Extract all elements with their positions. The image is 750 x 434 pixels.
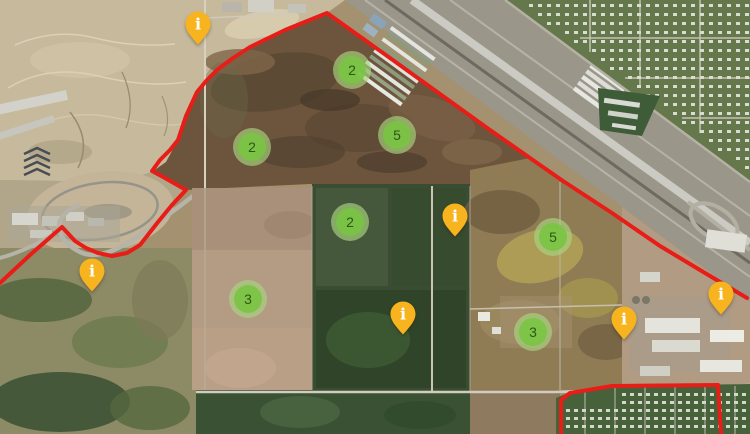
info-pin[interactable]: i: [390, 301, 416, 335]
cluster-marker[interactable]: 2: [331, 203, 369, 241]
info-pin[interactable]: i: [611, 306, 637, 340]
cluster-count: 5: [383, 121, 411, 149]
svg-text:i: i: [718, 285, 724, 304]
info-pin-icon: i: [79, 258, 105, 292]
map-canvas[interactable]: 2522533 iiiiii: [0, 0, 750, 434]
cluster-count: 3: [519, 318, 547, 346]
info-pin-icon: i: [185, 11, 211, 45]
cluster-marker[interactable]: 3: [514, 313, 552, 351]
cluster-count: 3: [234, 285, 262, 313]
satellite-imagery: [0, 0, 750, 434]
cluster-count: 5: [539, 223, 567, 251]
info-pin[interactable]: i: [442, 203, 468, 237]
info-pin[interactable]: i: [185, 11, 211, 45]
cluster-marker[interactable]: 5: [534, 218, 572, 256]
svg-text:i: i: [400, 305, 406, 324]
svg-text:i: i: [452, 207, 458, 226]
info-pin-icon: i: [611, 306, 637, 340]
info-pin-icon: i: [390, 301, 416, 335]
cluster-marker[interactable]: 3: [229, 280, 267, 318]
cluster-marker[interactable]: 2: [233, 128, 271, 166]
cluster-count: 2: [338, 56, 366, 84]
svg-text:i: i: [89, 262, 95, 281]
cluster-marker[interactable]: 5: [378, 116, 416, 154]
info-pin-icon: i: [442, 203, 468, 237]
cluster-marker[interactable]: 2: [333, 51, 371, 89]
cluster-count: 2: [336, 208, 364, 236]
info-pin[interactable]: i: [79, 258, 105, 292]
cluster-count: 2: [238, 133, 266, 161]
svg-text:i: i: [621, 310, 627, 329]
info-pin[interactable]: i: [708, 281, 734, 315]
info-pin-icon: i: [708, 281, 734, 315]
svg-text:i: i: [195, 15, 201, 34]
